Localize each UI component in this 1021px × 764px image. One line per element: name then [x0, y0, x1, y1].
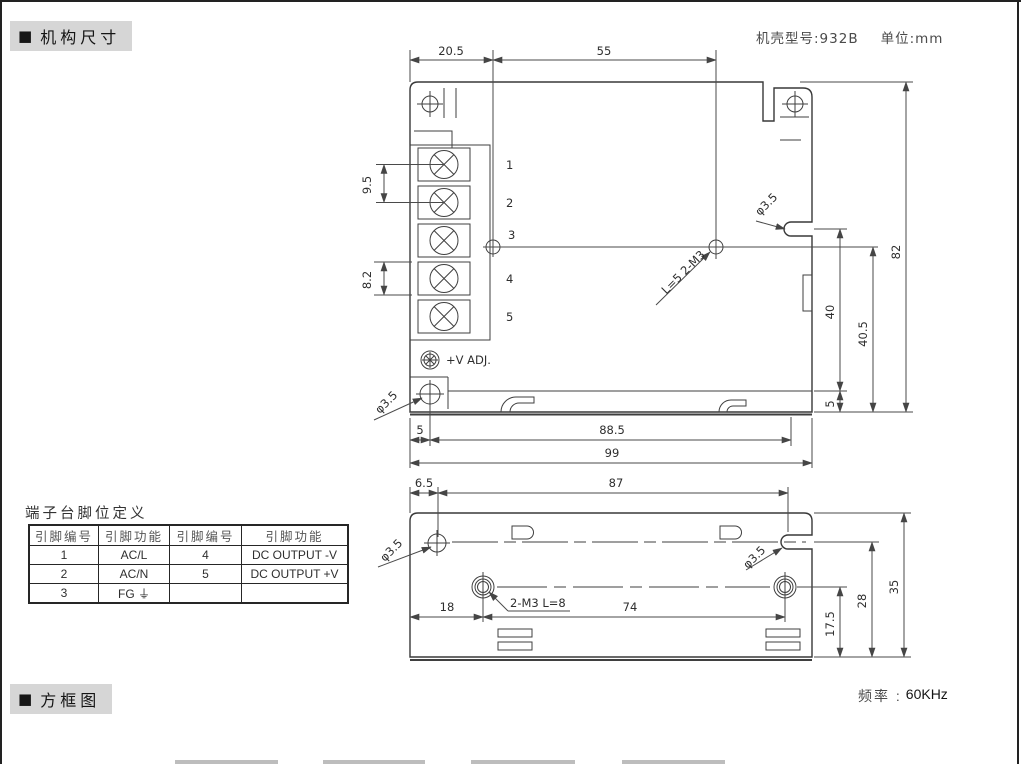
- dim-99: 99: [605, 446, 620, 460]
- screw-hole-left: [472, 572, 494, 602]
- pin-number: 2: [29, 565, 99, 584]
- frequency-label: 频率 :: [858, 686, 902, 706]
- bottom-view-dim-labels: 6.5 87 18 74 17.5 28 35 φ3.5 φ3.5 2-M3 L…: [377, 476, 901, 637]
- d-cutout-right: [720, 526, 742, 539]
- terminal-num-1: 1: [506, 158, 513, 172]
- top-left-ear: [414, 88, 456, 148]
- col-header: 引脚编号: [170, 525, 242, 546]
- label-phi-bottom: φ3.5: [372, 388, 400, 416]
- table-row: 2 AC/N 5 DC OUTPUT +V: [29, 565, 348, 584]
- table-row: 1 AC/L 4 DC OUTPUT -V: [29, 546, 348, 565]
- terminal-num-5: 5: [506, 310, 513, 324]
- dim-87: 87: [609, 476, 624, 490]
- mounting-hole-bv-left: [424, 530, 450, 556]
- pin-function: AC/L: [99, 546, 170, 565]
- pin-number: 4: [170, 546, 242, 565]
- label-phi-bv-left: φ3.5: [377, 536, 405, 564]
- table-row: 3 FG ⏚: [29, 584, 348, 604]
- frequency-value: 60KHz: [906, 686, 948, 706]
- datasheet-page: ■ 机构尺寸 机壳型号:932B 单位:mm: [0, 0, 1021, 764]
- pin-number: [170, 584, 242, 604]
- block-diagram-box-top: [622, 760, 725, 764]
- dim-40: 40: [823, 305, 837, 320]
- pin-number: 5: [170, 565, 242, 584]
- dim-6-5: 6.5: [415, 476, 433, 490]
- dim-88-5: 88.5: [599, 423, 625, 437]
- vent-slot: [766, 642, 800, 650]
- terminal-block: [410, 145, 490, 340]
- block-diagram-box-top: [471, 760, 575, 764]
- block-diagram-box-top: [175, 760, 278, 764]
- vent-slot: [766, 629, 800, 637]
- pin-table-title: 端子台脚位定义: [25, 502, 148, 523]
- bottom-details: [410, 526, 812, 660]
- vent-slot: [498, 642, 532, 650]
- base-plate-line: [410, 377, 812, 409]
- vent-slot: [498, 629, 532, 637]
- col-header: 引脚功能: [242, 525, 349, 546]
- dim-82: 82: [889, 245, 903, 260]
- block-diagram-box-top: [323, 760, 425, 764]
- pin-function: FG ⏚: [99, 584, 170, 604]
- top-view-drawing: 20.5 55 9.5 8.2 40 5 40.5 82 5 88.5 99 φ…: [360, 44, 913, 468]
- pin-number: 3: [29, 584, 99, 604]
- d-cutout-left: [512, 526, 534, 539]
- pin-function: [242, 584, 349, 604]
- top-view-dim-labels: 20.5 55 9.5 8.2 40 5 40.5 82 5 88.5 99 φ…: [360, 44, 903, 460]
- dim-17-5: 17.5: [823, 611, 837, 637]
- dim-8-2: 8.2: [360, 271, 374, 289]
- terminal-num-3: 3: [508, 228, 515, 242]
- screw-hole-right: [774, 572, 796, 602]
- dim-20-5: 20.5: [438, 44, 464, 58]
- bottom-view-drawing: 6.5 87 18 74 17.5 28 35 φ3.5 φ3.5 2-M3 L…: [377, 476, 911, 660]
- bottom-outline: [410, 513, 812, 657]
- label-phi-bv-right: φ3.5: [740, 543, 768, 571]
- dim-40-5: 40.5: [856, 321, 870, 347]
- label-vadj: +V ADJ.: [446, 353, 491, 367]
- dim-28: 28: [855, 594, 869, 609]
- dim-9-5: 9.5: [360, 176, 374, 194]
- top-right-ear: [780, 91, 809, 140]
- dim-55: 55: [597, 44, 612, 58]
- dim-35: 35: [887, 580, 901, 595]
- frequency-info: 频率 : 60KHz: [858, 686, 948, 706]
- col-header: 引脚功能: [99, 525, 170, 546]
- pin-function: DC OUTPUT +V: [242, 565, 349, 584]
- terminal-num-4: 4: [506, 272, 513, 286]
- dim-74: 74: [623, 600, 638, 614]
- pin-number: 1: [29, 546, 99, 565]
- table-header-row: 引脚编号 引脚功能 引脚编号 引脚功能: [29, 525, 348, 546]
- terminal-num-2: 2: [506, 196, 513, 210]
- section-header-block-diagram: ■ 方框图: [10, 684, 112, 714]
- dim-5-flange: 5: [823, 400, 837, 407]
- pin-definition-table: 引脚编号 引脚功能 引脚编号 引脚功能 1 AC/L 4 DC OUTPUT -…: [28, 524, 349, 604]
- dim-18: 18: [440, 600, 455, 614]
- label-screw-spec: L=5 2-M3: [659, 248, 708, 297]
- section-marker-icon: ■: [18, 690, 32, 708]
- vadj-potentiometer: [421, 351, 439, 369]
- dim-5-offset: 5: [416, 423, 423, 437]
- pin-function: AC/N: [99, 565, 170, 584]
- clip-left: [501, 397, 534, 412]
- mechanical-drawing: 20.5 55 9.5 8.2 40 5 40.5 82 5 88.5 99 φ…: [0, 0, 1021, 764]
- label-screw-spec-bv: 2-M3 L=8: [510, 596, 566, 610]
- pin-function: DC OUTPUT -V: [242, 546, 349, 565]
- side-vent-slot: [803, 275, 812, 311]
- section-title: 方框图: [40, 687, 100, 711]
- col-header: 引脚编号: [29, 525, 99, 546]
- clip-right: [719, 400, 746, 412]
- mounting-hole-bottom: [416, 380, 444, 408]
- label-phi-side: φ3.5: [752, 190, 780, 218]
